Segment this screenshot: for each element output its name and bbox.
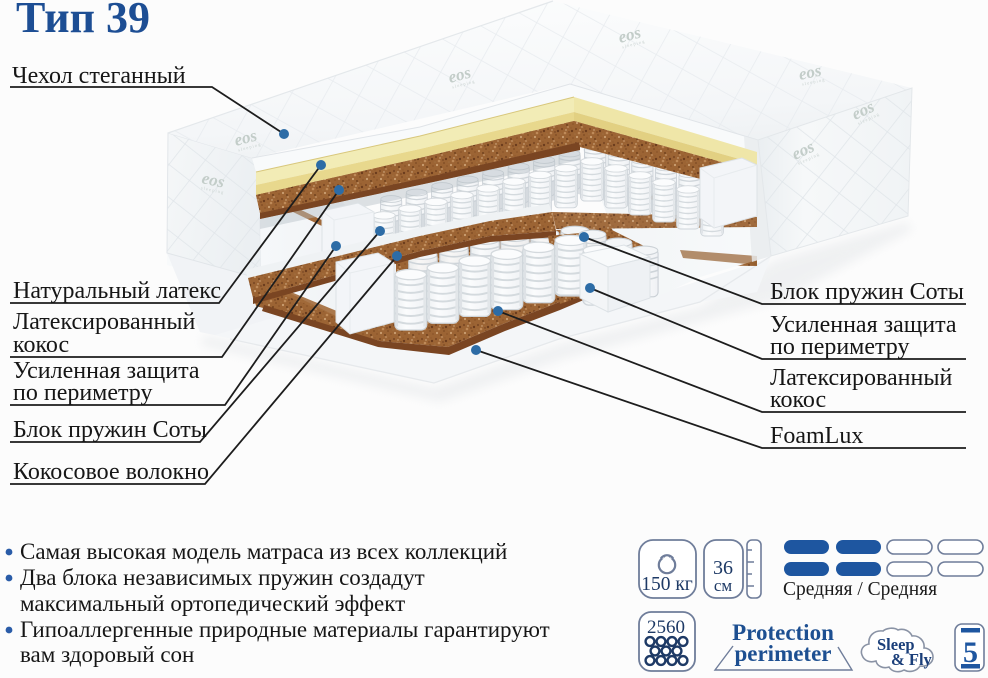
svg-text:Чехол стеганный: Чехол стеганный (12, 63, 186, 89)
svg-text:150 кг: 150 кг (641, 574, 693, 595)
svg-text:кокос: кокос (770, 387, 826, 413)
svg-text:Кокосовое волокно: Кокосовое волокно (13, 459, 209, 485)
svg-text:FoamLux: FoamLux (770, 423, 863, 449)
svg-text:2560: 2560 (647, 617, 685, 638)
svg-text:Два блока независимых пружин с: Два блока независимых пружин создадут (20, 565, 425, 590)
svg-text:Тип 39: Тип 39 (16, 0, 150, 42)
svg-text:кокос: кокос (13, 332, 69, 358)
svg-text:Средняя / Средняя: Средняя / Средняя (783, 579, 937, 600)
svg-text:Натуральный латекс: Натуральный латекс (13, 278, 221, 304)
svg-text:Блок пружин Соты: Блок пружин Соты (13, 417, 207, 443)
svg-text:по периметру: по периметру (770, 334, 910, 360)
svg-text:Гипоаллергенные природные мате: Гипоаллергенные природные материалы гара… (20, 617, 550, 642)
svg-text:perimeter: perimeter (734, 641, 831, 666)
svg-text:& Fly: & Fly (891, 650, 933, 669)
svg-text:по периметру: по периметру (13, 380, 153, 406)
svg-text:Блок пружин Соты: Блок пружин Соты (770, 279, 964, 305)
svg-text:см: см (714, 576, 733, 595)
svg-text:максимальный ортопедический эф: максимальный ортопедический эффект (20, 591, 405, 616)
svg-text:Самая высокая модель матраса и: Самая высокая модель матраса из всех кол… (20, 539, 507, 564)
svg-text:вам здоровый сон: вам здоровый сон (20, 642, 194, 667)
